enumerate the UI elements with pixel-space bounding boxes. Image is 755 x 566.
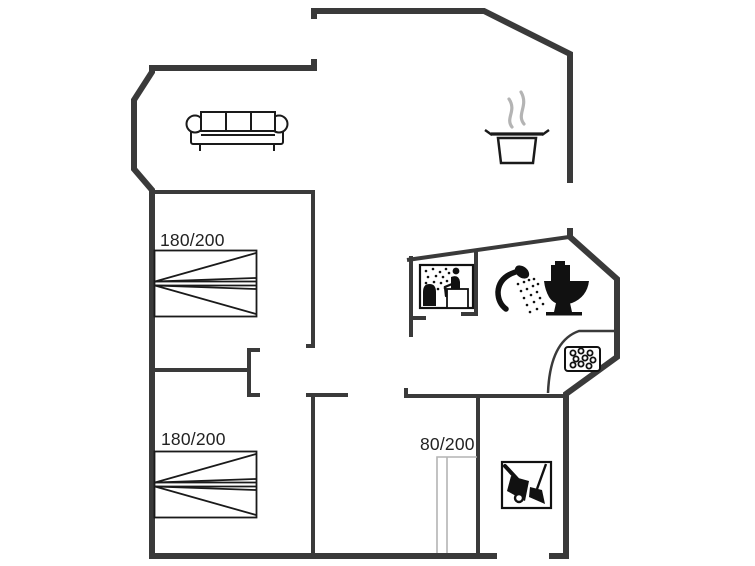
floor-plan-drawing — [0, 0, 755, 566]
floor-plan: 180/200 180/200 80/200 — [0, 0, 755, 566]
double-bed-icon — [155, 251, 257, 317]
sofa-icon — [187, 112, 288, 151]
shower-drain-icon — [565, 347, 600, 371]
steam-icon — [509, 92, 524, 127]
bed-size-label: 180/200 — [160, 230, 225, 251]
toilet-icon — [544, 261, 589, 316]
bed-size-label: 80/200 — [420, 434, 475, 455]
cooking-pot-icon — [485, 130, 549, 163]
double-bed-icon — [155, 452, 257, 518]
single-bed-icon — [437, 457, 477, 553]
cleaning-utility-icon — [502, 462, 551, 508]
bed-size-label: 180/200 — [161, 429, 226, 450]
sauna-icon — [420, 265, 473, 308]
shower-icon — [498, 263, 544, 314]
